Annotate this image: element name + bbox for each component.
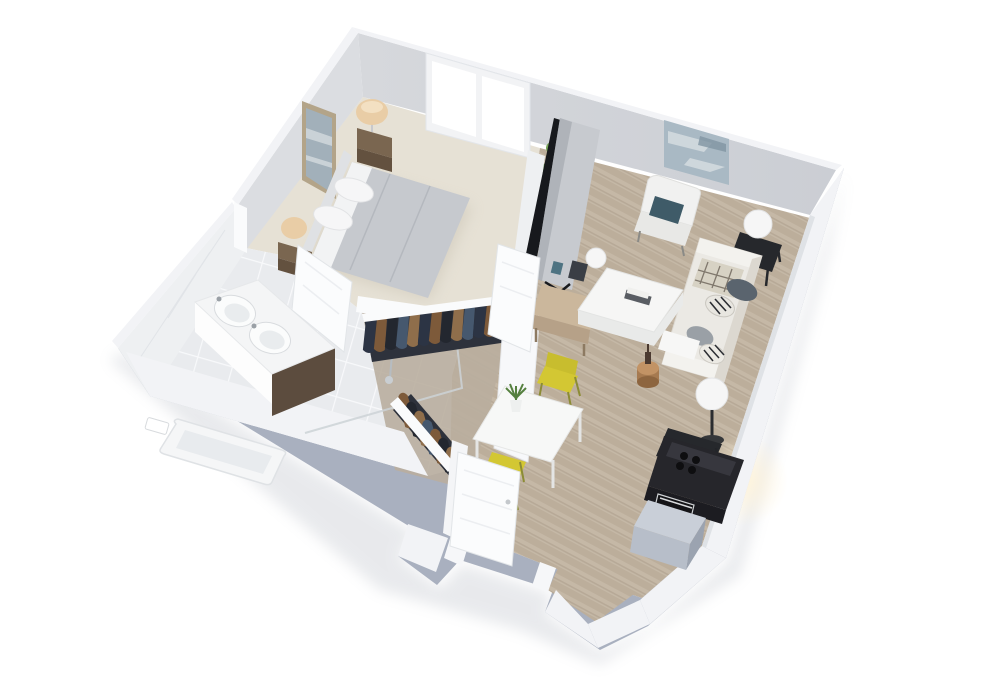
table-lamp-shade-top [361, 101, 383, 113]
entry-door-knob [506, 500, 511, 505]
orb-table-lamp [744, 210, 772, 238]
console-orb-lamp [586, 248, 606, 268]
table-lamp-shade [281, 217, 307, 239]
bedroom-door-panel [488, 244, 540, 352]
floor-lamp-orb [696, 378, 728, 410]
faucet-left [217, 297, 222, 302]
table-plant-pot [510, 400, 522, 412]
floorplan-render: 3D isometric cutaway rendering of a one-… [0, 0, 1000, 700]
shower-head [385, 376, 393, 384]
bathroom-door-frame [234, 202, 247, 253]
stool-bottom [637, 376, 659, 388]
faucet-right [252, 324, 257, 329]
window-pane-right [482, 76, 524, 152]
floorplan-svg: 3D isometric cutaway rendering of a one-… [0, 0, 1000, 700]
tub-faucet [145, 417, 169, 435]
